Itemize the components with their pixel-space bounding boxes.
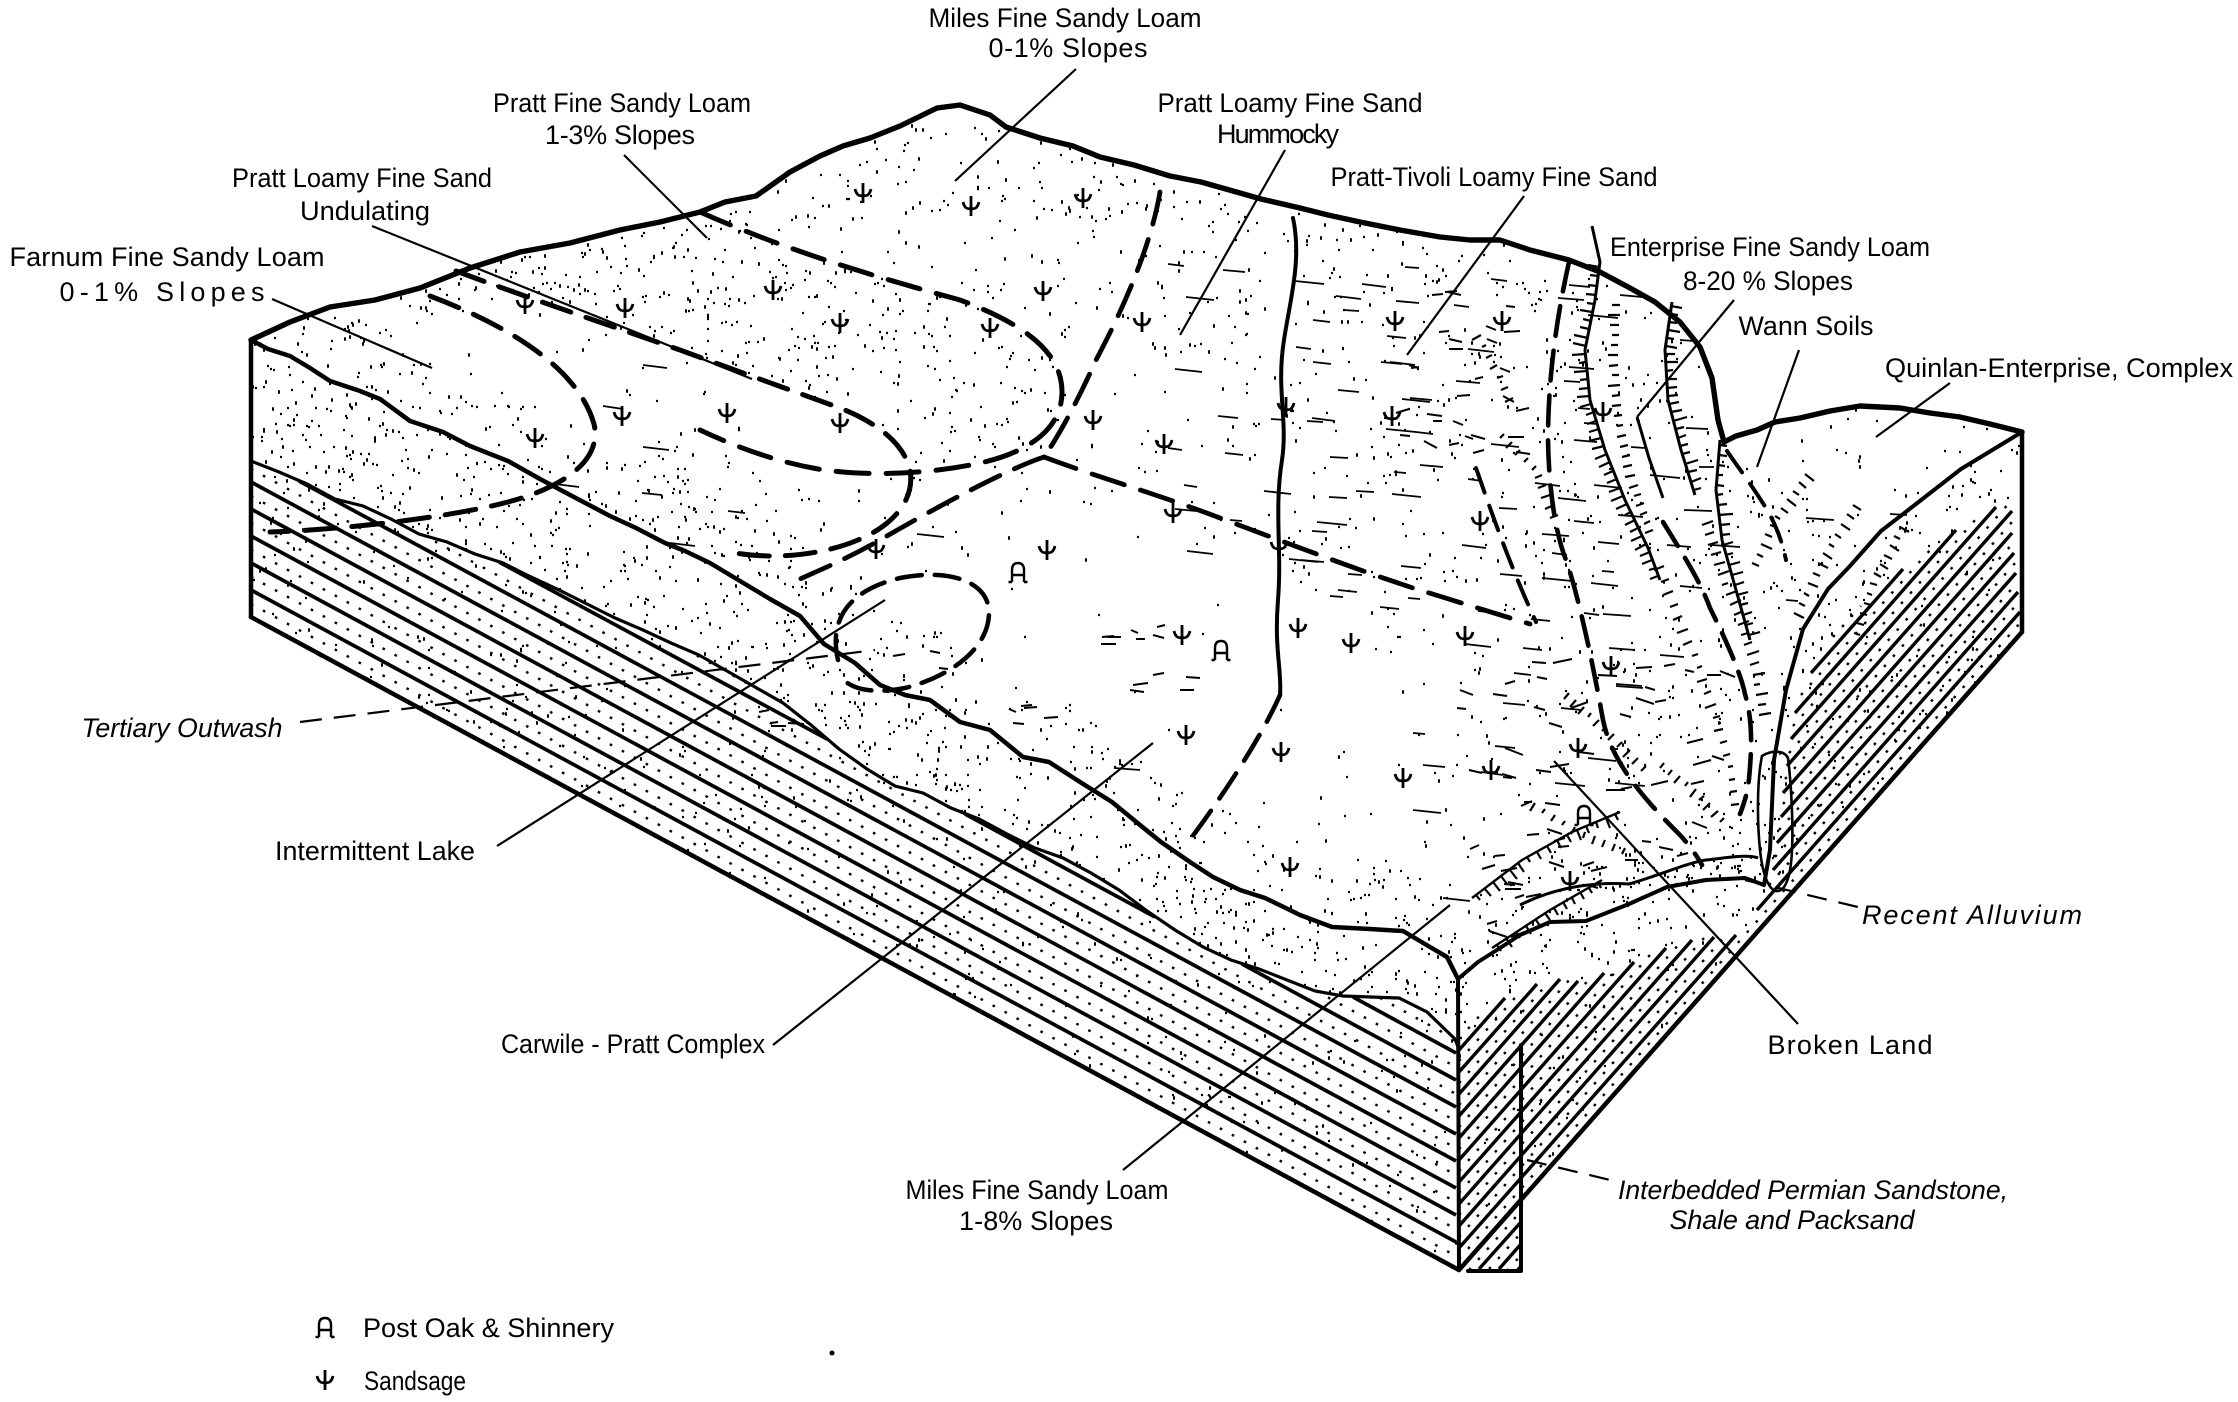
svg-text:Broken Land: Broken Land: [1768, 1030, 1933, 1060]
svg-text:0-1% Slopes: 0-1% Slopes: [989, 33, 1148, 63]
svg-text:Undulating: Undulating: [300, 196, 430, 226]
svg-text:Post Oak & Shinnery: Post Oak & Shinnery: [363, 1313, 614, 1343]
svg-text:Quinlan-Enterprise, Complex: Quinlan-Enterprise, Complex: [1885, 353, 2233, 383]
svg-text:8-20 % Slopes: 8-20 % Slopes: [1683, 266, 1853, 296]
svg-text:Hummocky: Hummocky: [1217, 119, 1340, 149]
svg-text:1-3% Slopes: 1-3% Slopes: [545, 120, 695, 150]
svg-text:Enterprise Fine Sandy Loam: Enterprise Fine Sandy Loam: [1610, 232, 1930, 262]
svg-text:Miles Fine Sandy Loam: Miles Fine Sandy Loam: [906, 1175, 1169, 1205]
svg-text:Shale and Packsand: Shale and Packsand: [1670, 1205, 1916, 1235]
svg-text:Farnum Fine Sandy Loam: Farnum Fine Sandy Loam: [10, 242, 325, 272]
svg-text:Intermittent Lake: Intermittent Lake: [275, 836, 475, 866]
svg-text:Carwile - Pratt Complex: Carwile - Pratt Complex: [501, 1029, 765, 1059]
svg-text:Wann Soils: Wann Soils: [1739, 311, 1874, 341]
svg-text:Miles Fine Sandy Loam: Miles Fine Sandy Loam: [929, 3, 1202, 33]
svg-text:1-8% Slopes: 1-8% Slopes: [959, 1206, 1113, 1236]
svg-text:Interbedded Permian Sandstone,: Interbedded Permian Sandstone,: [1618, 1175, 2008, 1205]
svg-text:Tertiary Outwash: Tertiary Outwash: [82, 713, 283, 743]
svg-text:Pratt Loamy Fine Sand: Pratt Loamy Fine Sand: [232, 163, 492, 193]
svg-text:Pratt Loamy Fine Sand: Pratt Loamy Fine Sand: [1158, 88, 1423, 118]
svg-text:Pratt Fine Sandy Loam: Pratt Fine Sandy Loam: [493, 88, 751, 118]
svg-text:Sandsage: Sandsage: [364, 1366, 466, 1396]
svg-text:Recent Alluvium: Recent Alluvium: [1862, 900, 2082, 930]
svg-text:Pratt-Tivoli Loamy Fine Sand: Pratt-Tivoli Loamy Fine Sand: [1331, 162, 1658, 192]
